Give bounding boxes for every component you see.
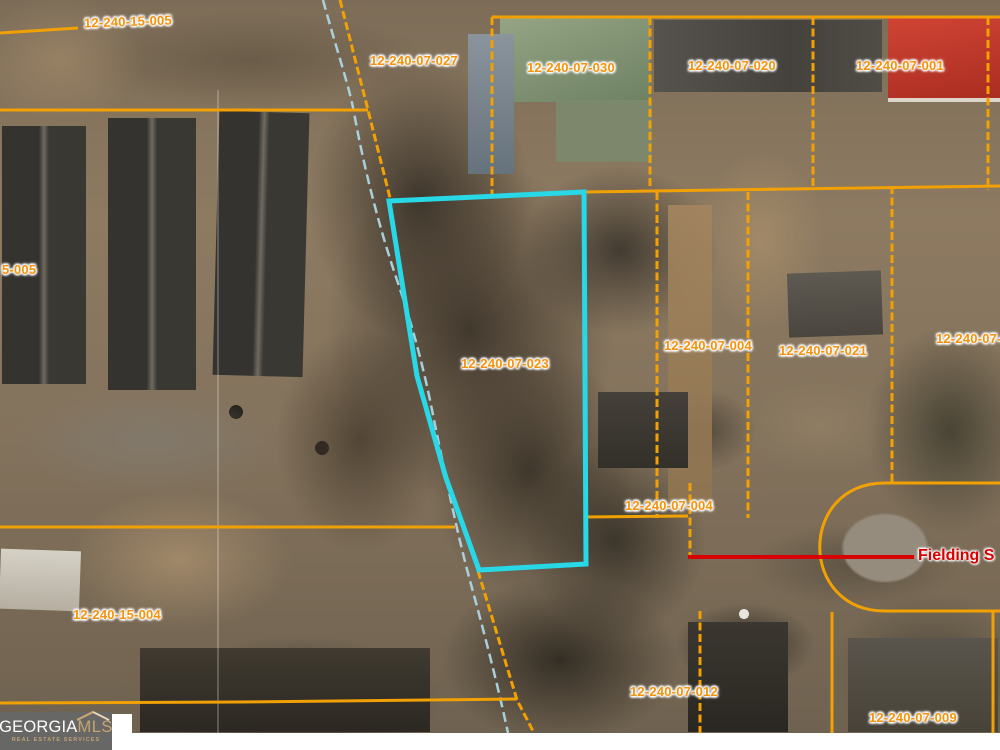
- logo-wordmark: GEORGIA MLS: [0, 719, 113, 736]
- parcel-label: 12-240-07-030: [527, 60, 615, 75]
- parcel-label: 12-240-07-012: [630, 684, 718, 699]
- parcel-label: 12-240-07-004: [664, 338, 752, 353]
- parcel-label: 12-240-07-021: [779, 343, 867, 358]
- parcel-label: 12-240-07-027: [370, 53, 458, 68]
- roof-chevron-icon: [76, 711, 110, 721]
- white-margin-band: [0, 733, 1000, 750]
- highlighted-parcel-outline: [389, 192, 586, 570]
- georgia-mls-logo: GEORGIA MLS REAL ESTATE SERVICES: [0, 712, 112, 750]
- parcel-boundary-lines: [0, 17, 1000, 733]
- parcel-label: 12-240-07-004: [625, 498, 713, 513]
- parcel-label: 12-240-15-005: [84, 12, 172, 30]
- parcel-line-overlay: [0, 0, 1000, 750]
- parcel-label: 5-005: [2, 262, 36, 277]
- parcel-map-viewport: 12-240-15-005 12-240-07-027 12-240-07-03…: [0, 0, 1000, 750]
- parcel-label-highlighted: 12-240-07-023: [461, 356, 549, 371]
- street-name-label: Fielding S: [918, 547, 994, 565]
- parcel-label: 12-240-07-009: [869, 710, 957, 725]
- parcel-label: 12-240-07-001: [856, 58, 944, 73]
- parcel-label: 12-240-15-004: [73, 607, 161, 622]
- parcel-label: 12-240-07-020: [688, 58, 776, 73]
- logo-georgia-text: GEORGIA: [0, 719, 78, 736]
- parcel-boundary-lines-dashed: [340, 0, 988, 733]
- logo-tagline: REAL ESTATE SERVICES: [12, 737, 101, 743]
- parcel-label: 12-240-07-0: [936, 331, 1000, 346]
